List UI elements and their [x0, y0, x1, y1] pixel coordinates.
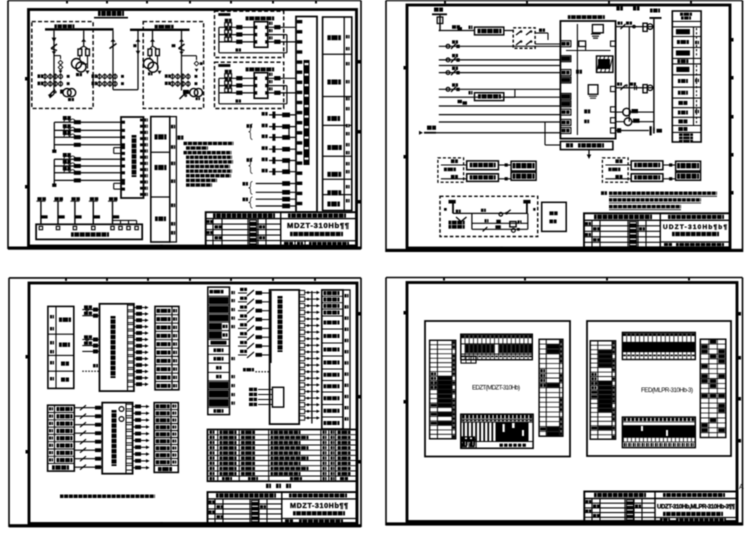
svg-text:A: A: [739, 484, 744, 491]
svg-text:FED(MLPR-310Hb-3): FED(MLPR-310Hb-3): [641, 387, 693, 394]
svg-text:MDZT-310Hb¶¶: MDZT-310Hb¶¶: [287, 221, 349, 230]
svg-text:UDZT-310Hb,MLPR-310Hb-3¶¶: UDZT-310Hb,MLPR-310Hb-3¶¶: [657, 505, 736, 511]
svg-text:EDZT(MDZT-310Hb): EDZT(MDZT-310Hb): [472, 385, 520, 392]
svg-text:MDZT-310Hb¶¶: MDZT-310Hb¶¶: [290, 501, 348, 510]
svg-text:UDZT-310Hb¶b¶: UDZT-310Hb¶b¶: [663, 224, 727, 231]
